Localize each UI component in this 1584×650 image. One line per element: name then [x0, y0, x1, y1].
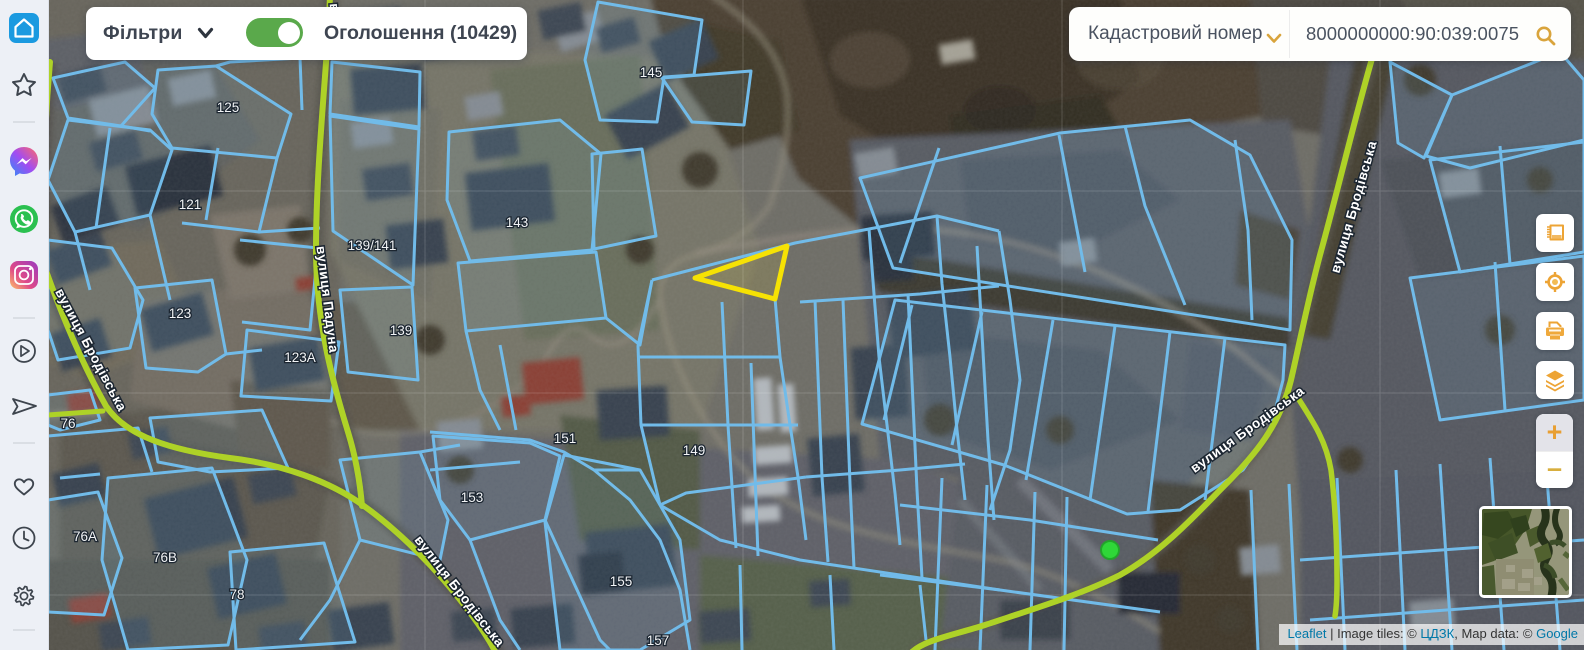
svg-text:145: 145	[640, 65, 663, 80]
svg-text:149: 149	[683, 443, 706, 458]
svg-text:123А: 123А	[284, 350, 316, 365]
svg-text:76: 76	[60, 416, 75, 431]
svg-text:155: 155	[610, 574, 633, 589]
svg-text:76В: 76В	[153, 550, 177, 565]
svg-text:78: 78	[229, 587, 244, 602]
svg-text:143: 143	[506, 215, 529, 230]
svg-text:139/141: 139/141	[348, 238, 397, 253]
svg-text:125: 125	[217, 100, 240, 115]
svg-text:121: 121	[179, 197, 202, 212]
svg-text:123: 123	[169, 306, 192, 321]
svg-text:153: 153	[461, 490, 484, 505]
svg-text:151: 151	[554, 431, 577, 446]
svg-text:76А: 76А	[73, 529, 97, 544]
svg-text:139: 139	[390, 323, 413, 338]
svg-text:157: 157	[647, 633, 670, 648]
